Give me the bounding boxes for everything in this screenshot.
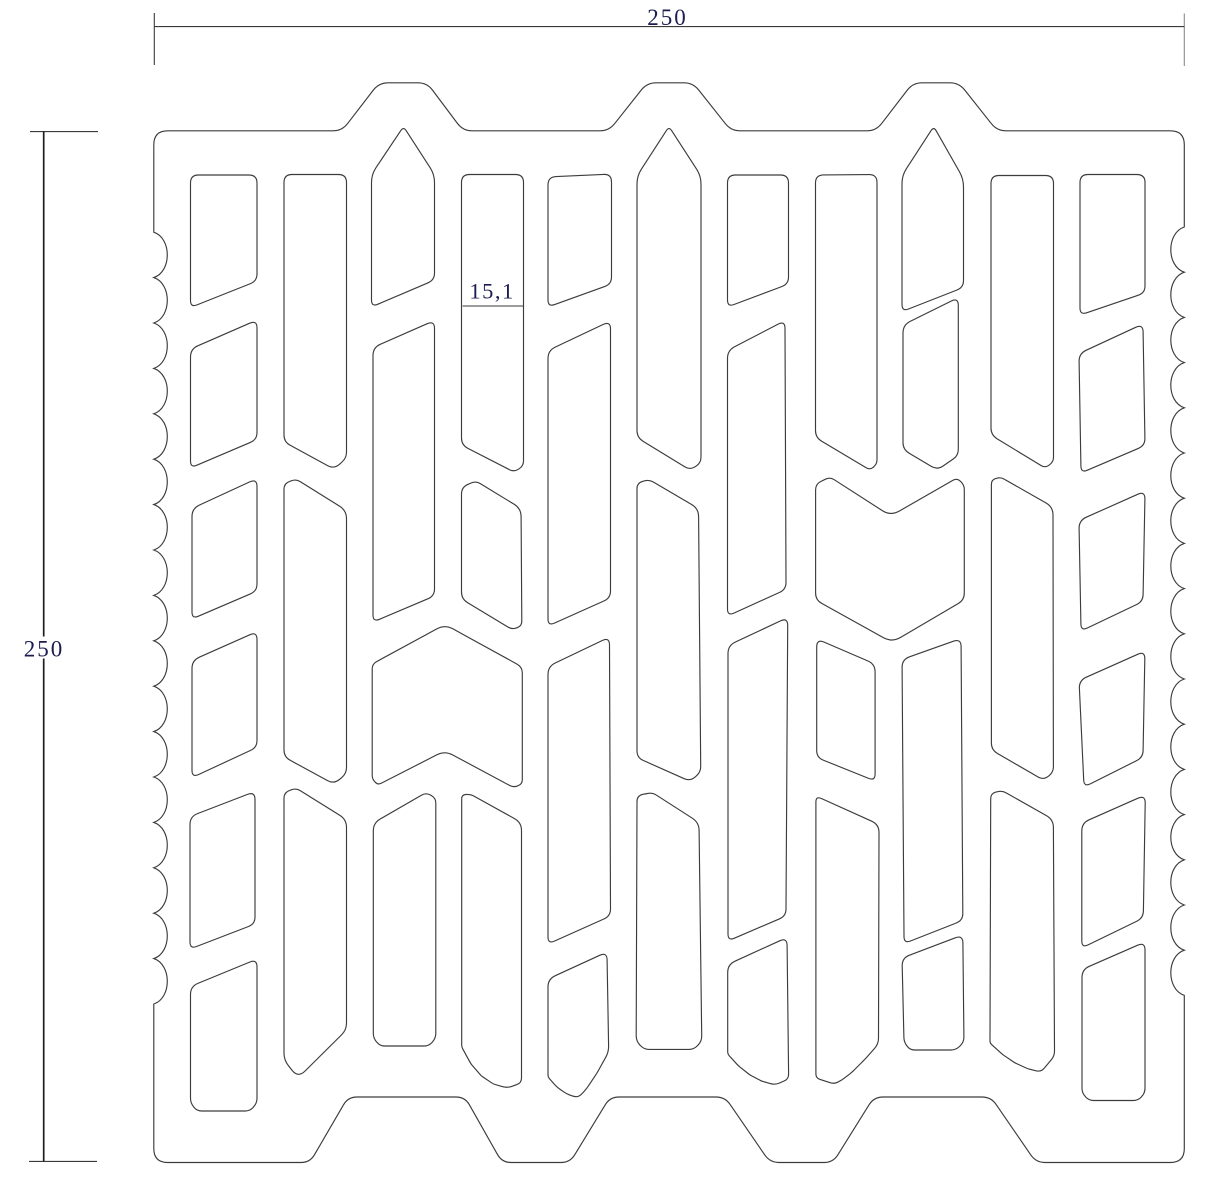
svg-text:250: 250 (24, 637, 65, 662)
svg-text:250: 250 (647, 5, 688, 30)
svg-text:15,1: 15,1 (469, 279, 514, 304)
